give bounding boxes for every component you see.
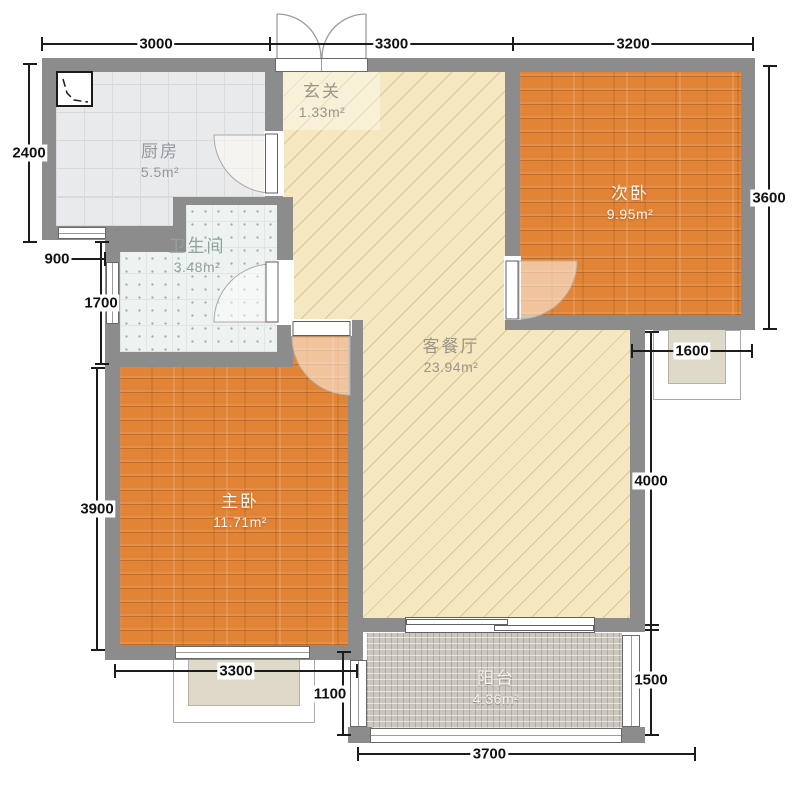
door-swing-kitchen-icon — [214, 134, 278, 193]
floor-plan: 厨房 5.5m² 玄关 1.33m² 次卧 9.95m² 卫生间 3.48m² … — [0, 0, 800, 800]
door-swing-bedroom2-icon — [506, 261, 577, 319]
room-label-kitchen: 厨房 5.5m² — [141, 141, 179, 181]
dim-left-1: 2400 — [28, 64, 30, 242]
plan-symbols — [0, 0, 800, 800]
entry-double-door-icon — [277, 14, 366, 58]
room-label-bedroom2: 次卧 9.95m² — [607, 183, 654, 223]
room-label-hall: 玄关 1.33m² — [299, 81, 346, 121]
dim-top-2: 3300 — [270, 43, 513, 45]
dim-left-2: 900 — [45, 258, 105, 260]
dim-bottom-3: 3700 — [358, 753, 695, 755]
dim-top-1: 3000 — [42, 43, 270, 45]
dim-right-3: 4000 — [650, 332, 652, 630]
dim-right-1: 3600 — [768, 66, 770, 329]
flue-icon — [57, 72, 92, 106]
door-swing-master-icon — [292, 322, 350, 396]
dim-left-4: 3900 — [96, 368, 98, 650]
dim-right-4: 1500 — [650, 625, 652, 735]
dim-bottom-1: 3300 — [115, 670, 357, 672]
room-label-balcony: 阳台 4.36m² — [473, 668, 520, 708]
room-label-living: 客餐厅 23.94m² — [423, 336, 480, 376]
dim-left-3: 1700 — [100, 242, 102, 364]
dim-top-3: 3200 — [513, 43, 753, 45]
room-label-bath: 卫生间 3.48m² — [169, 236, 226, 276]
dim-bottom-2: 1100 — [342, 652, 344, 735]
room-label-master: 主卧 11.71m² — [213, 491, 267, 531]
